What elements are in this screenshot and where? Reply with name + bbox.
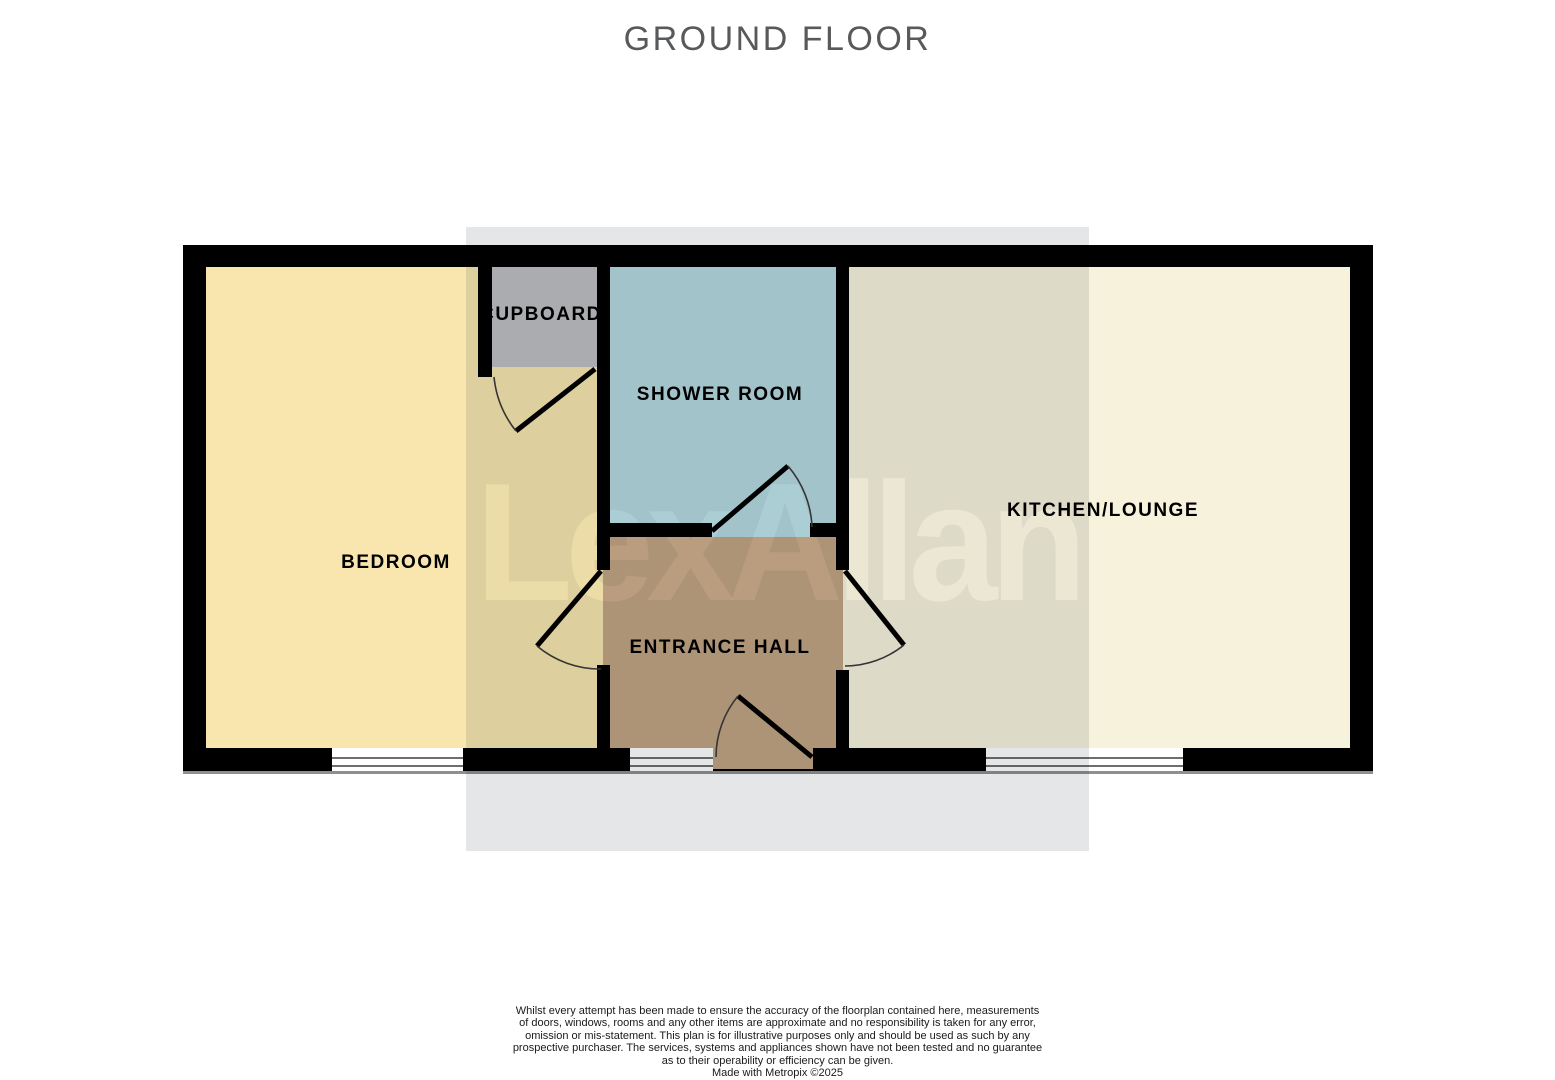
floorplan-page: { "title": "GROUND FLOOR", "title_color"… [0,0,1555,1080]
kitchen-door-leaf [845,571,904,645]
bedroom-door-arc [537,646,601,669]
cupboard-door-arc [494,377,516,431]
door-symbols [0,0,1555,1080]
shower-door-arc [788,466,812,527]
cupboard-door-leaf [516,369,595,431]
floorplan: BEDROOM CUPBOARD SHOWER ROOM ENTRANCE HA… [0,0,1555,1080]
front-door-arc [716,696,738,757]
bedroom-door-leaf [537,571,601,646]
shower-door-leaf [712,466,788,531]
plan-base-line [183,771,1373,774]
front-door-leaf [738,696,812,757]
kitchen-door-arc [845,645,904,666]
